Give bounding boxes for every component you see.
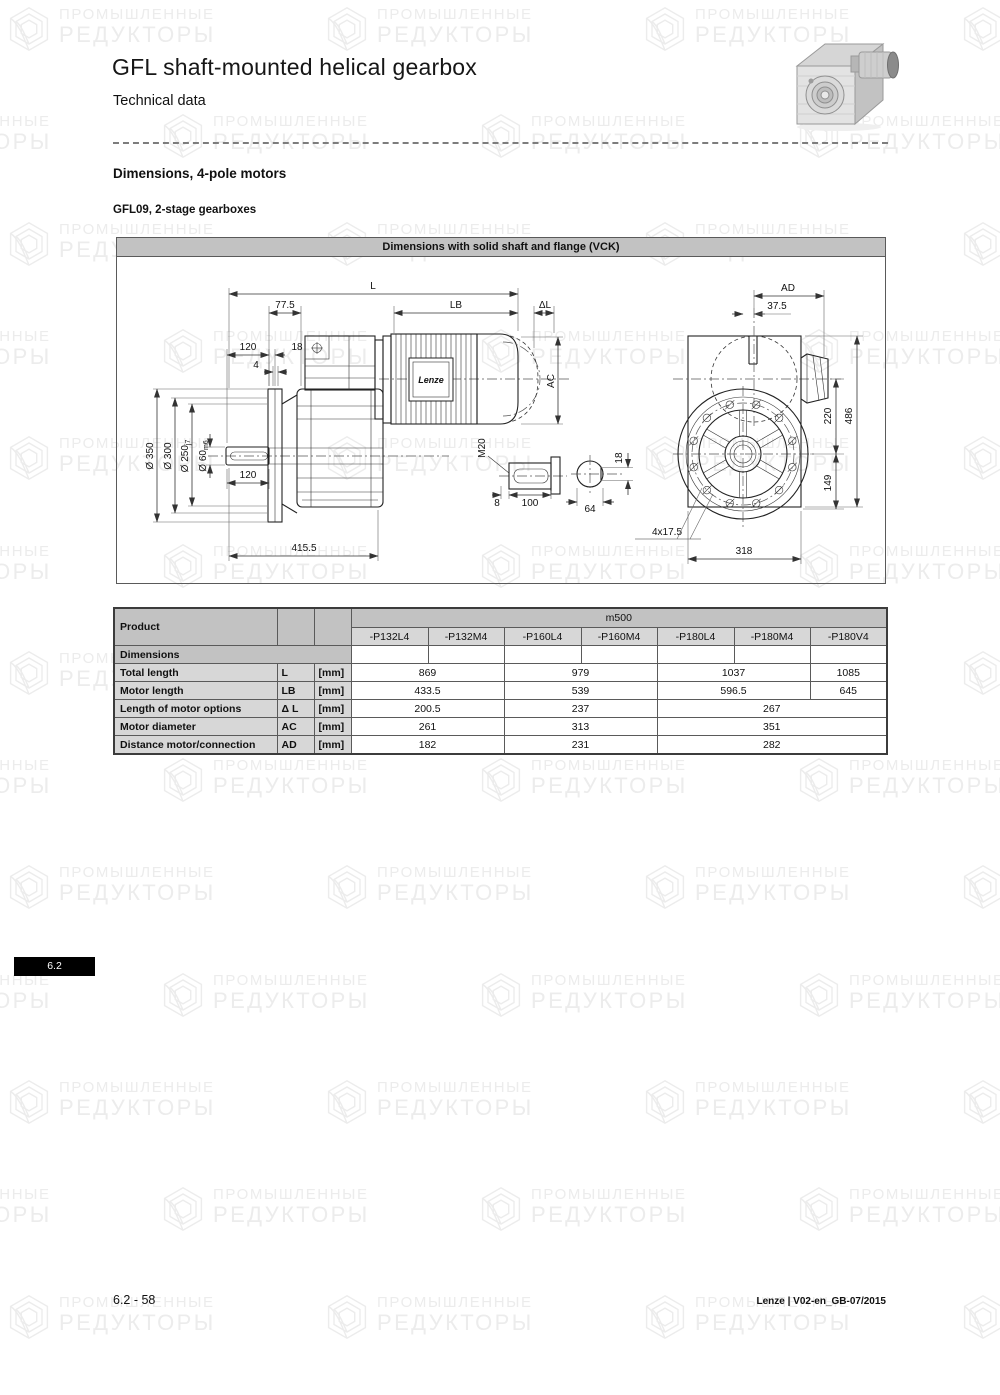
row-symbol: AC [277,718,314,736]
footer-page-number: 6.2 - 58 [113,1293,155,1307]
group-header-m500: m500 [351,608,887,628]
value-cell: 433.5 [351,682,504,700]
dim-dia-350: Ø 350 [145,442,156,470]
value-cell: 200.5 [351,700,504,718]
value-cell: 869 [351,664,504,682]
drawing-box: Lenze L 7 [116,237,886,584]
side-view: Lenze [208,334,572,522]
row-label: Total length [114,664,277,682]
sub-heading: GFL09, 2-stage gearboxes [113,204,256,216]
dim-18: 18 [291,342,303,353]
dim-delta-L: ΔL [539,300,552,311]
dim-77-5: 77.5 [275,300,295,311]
value-cell: 1085 [810,664,887,682]
dim-318: 318 [736,546,753,557]
row-label: Motor length [114,682,277,700]
value-cell: 182 [351,736,504,755]
dim-dia-60: Ø 60m6 [198,440,210,472]
row-symbol: L [277,664,314,682]
dim-120-shaft: 120 [240,470,257,481]
section-label: Dimensions [114,646,351,664]
section-heading: Dimensions, 4-pole motors [113,166,286,181]
row-label: Distance motor/connection [114,736,277,755]
row-symbol: LB [277,682,314,700]
page-title: GFL shaft-mounted helical gearbox [112,54,477,81]
table-row: Length of motor optionsΔ L[mm]200.523726… [114,700,887,718]
row-unit: [mm] [314,682,351,700]
motor-brand-label: Lenze [418,375,444,385]
table-row: Distance motor/connectionAD[mm]182231282 [114,736,887,755]
footer-doc-reference: Lenze | V02-en_GB-07/2015 [586,1296,886,1307]
dim-M20: M20 [477,438,488,458]
catalog-page: ПРОМЫШЛЕННЫЕРЕДУКТОРЫПРОМЫШЛЕННЫЕРЕДУКТО… [0,0,1000,1395]
empty-cell [428,646,504,664]
dim-dia-250: Ø 250j7 [180,440,192,473]
empty-cell [657,646,734,664]
row-symbol: Δ L [277,700,314,718]
page-subtitle: Technical data [113,93,206,109]
dim-key-18: 18 [614,452,625,464]
row-unit: [mm] [314,700,351,718]
product-column: -P160M4 [581,628,657,646]
drawing-header: Dimensions with solid shaft and flange (… [117,238,885,257]
table-header-row: Productm500 [114,608,887,628]
technical-drawing: Lenze L 7 [117,238,887,585]
row-unit: [mm] [314,664,351,682]
product-column: -P160L4 [504,628,581,646]
side-view-dimensions: L 77.5 LB ΔL [145,281,563,561]
dashed-divider [113,142,888,144]
product-photo [787,26,907,132]
value-cell: 261 [351,718,504,736]
product-column: -P180L4 [657,628,734,646]
dim-64: 64 [584,504,596,515]
front-view-dimensions: AD 37.5 220 149 [635,283,863,564]
chapter-tab: 6.2 [14,957,95,976]
dim-AC: AC [546,374,557,388]
value-cell: 231 [504,736,657,755]
value-cell: 596.5 [657,682,810,700]
dim-415-5: 415.5 [291,543,316,554]
col-header-symbol [277,608,314,646]
dim-holes: 4x17.5 [652,527,682,538]
value-cell: 539 [504,682,657,700]
dim-120-top: 120 [240,342,257,353]
dim-100: 100 [522,498,539,509]
dim-LB: LB [450,300,463,311]
value-cell: 267 [657,700,887,718]
empty-cell [504,646,581,664]
value-cell: 979 [504,664,657,682]
front-view [673,308,841,530]
value-cell: 282 [657,736,887,755]
empty-cell [351,646,428,664]
row-unit: [mm] [314,718,351,736]
col-header-unit [314,608,351,646]
empty-cell [810,646,887,664]
shaft-detail: M20 8 100 [477,438,633,515]
dimensions-table: Productm500-P132L4-P132M4-P160L4-P160M4-… [113,607,888,755]
row-label: Length of motor options [114,700,277,718]
gearbox-photo-illustration [797,44,899,131]
row-unit: [mm] [314,736,351,755]
empty-cell [581,646,657,664]
dim-486: 486 [844,407,855,424]
dim-dia-300: Ø 300 [163,442,174,470]
table-row: Motor diameterAC[mm]261313351 [114,718,887,736]
dim-37-5: 37.5 [767,301,787,312]
empty-cell [734,646,810,664]
section-row: Dimensions [114,646,887,664]
row-symbol: AD [277,736,314,755]
dim-8: 8 [494,498,500,509]
dim-220: 220 [823,407,834,424]
row-label: Motor diameter [114,718,277,736]
value-cell: 645 [810,682,887,700]
dim-L: L [370,281,376,292]
product-column: -P180M4 [734,628,810,646]
product-column: -P132M4 [428,628,504,646]
dim-149: 149 [823,474,834,491]
product-column: -P132L4 [351,628,428,646]
col-header-product: Product [114,608,277,646]
value-cell: 351 [657,718,887,736]
dim-AD: AD [781,283,795,294]
value-cell: 313 [504,718,657,736]
product-column: -P180V4 [810,628,887,646]
value-cell: 1037 [657,664,810,682]
dim-4: 4 [253,360,259,371]
table-row: Motor lengthLB[mm]433.5539596.5645 [114,682,887,700]
value-cell: 237 [504,700,657,718]
table-row: Total lengthL[mm]86997910371085 [114,664,887,682]
